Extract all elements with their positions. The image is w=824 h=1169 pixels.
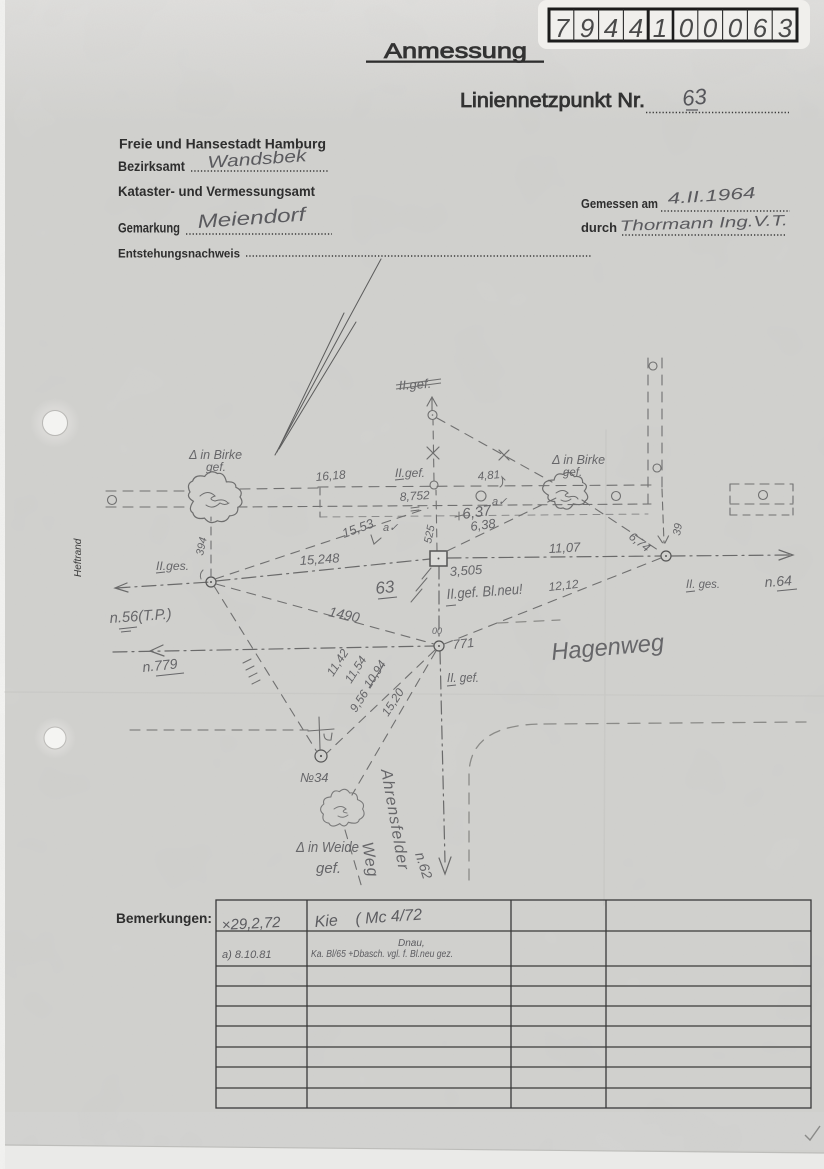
svg-text:4: 4 (629, 13, 643, 43)
svg-text:Gemessen am: Gemessen am (581, 197, 658, 211)
svg-text:16,18: 16,18 (315, 467, 346, 484)
svg-text:0: 0 (703, 13, 718, 43)
svg-text:11,07: 11,07 (548, 539, 581, 556)
svg-text:Entstehungsnachweis: Entstehungsnachweis (118, 247, 240, 261)
svg-text:39: 39 (671, 522, 685, 536)
svg-text:Bezirksamt: Bezirksamt (118, 159, 185, 174)
svg-text:1: 1 (653, 13, 667, 43)
svg-text:Anmessung: Anmessung (384, 39, 527, 63)
svg-text:a✓: a✓ (492, 496, 508, 508)
svg-text:Heftrand: Heftrand (73, 538, 84, 577)
svg-text:Liniennetzpunkt Nr.: Liniennetzpunkt Nr. (460, 90, 645, 112)
svg-text:II.gef.: II.gef. (395, 466, 425, 480)
svg-text:gef.: gef. (563, 467, 582, 479)
svg-text:durch: durch (581, 221, 617, 235)
svg-text:×29,2,72: ×29,2,72 (221, 914, 281, 934)
svg-text:63: 63 (374, 577, 395, 598)
svg-text:63: 63 (681, 83, 709, 111)
svg-text:Dnau,: Dnau, (398, 938, 425, 949)
svg-text:gef.: gef. (316, 860, 341, 877)
svg-text:№34: №34 (300, 770, 329, 785)
svg-text:4: 4 (604, 13, 618, 43)
svg-text:II. gef.: II. gef. (447, 670, 479, 685)
svg-text:4,81: 4,81 (477, 469, 500, 483)
svg-text:7: 7 (555, 13, 571, 43)
svg-text:Δ in Birke: Δ in Birke (551, 453, 605, 467)
svg-text:Kataster- und Vermessungsamt: Kataster- und Vermessungsamt (118, 184, 315, 199)
svg-text:Ka. Bl/65 +Dbasch. vgl. f. Bl.: Ka. Bl/65 +Dbasch. vgl. f. Bl.neu gez. (311, 949, 453, 960)
svg-text:gef.: gef. (206, 460, 226, 474)
svg-text:a✓: a✓ (383, 522, 399, 534)
svg-text:a) 8.10.81: a) 8.10.81 (222, 949, 272, 961)
svg-text:771: 771 (452, 635, 475, 652)
svg-text:II. ges.: II. ges. (686, 577, 720, 591)
svg-text:0: 0 (679, 13, 694, 43)
svg-text:n.64: n.64 (764, 572, 793, 590)
svg-text:3,505: 3,505 (449, 562, 483, 579)
svg-text:Gemarkung: Gemarkung (118, 221, 180, 236)
svg-text:0: 0 (728, 13, 743, 43)
svg-text:II.ges.: II.ges. (156, 559, 189, 573)
svg-text:00: 00 (432, 626, 442, 636)
svg-text:9: 9 (580, 13, 594, 43)
svg-text:15,248: 15,248 (299, 550, 340, 568)
svg-text:3: 3 (778, 13, 793, 43)
svg-text:Bemerkungen:: Bemerkungen: (116, 911, 212, 926)
svg-text:8,752: 8,752 (399, 488, 430, 504)
svg-text:6: 6 (753, 13, 768, 43)
svg-text:Δ in Weide: Δ in Weide (295, 839, 359, 856)
